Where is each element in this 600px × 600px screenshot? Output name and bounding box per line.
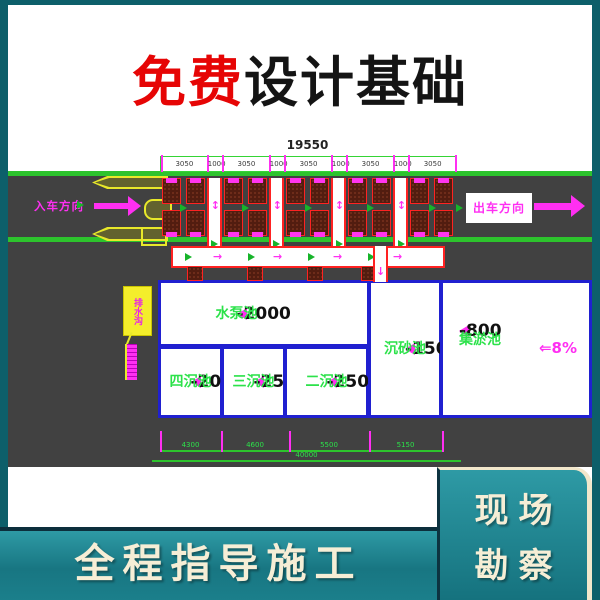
sand-pool-channel: ↓ [373,246,388,282]
channel-flow-arrow-icon: ↕ [273,200,282,211]
grate-cap [252,232,263,237]
flow-marker-icon [248,253,255,261]
promo-image: 免费设计基础 入车方向 出车方向 排水沟 19550 3050100030501… [0,0,600,600]
exit-direction-label: 出车方向 [466,193,532,223]
title-highlight: 免费 [132,51,244,114]
footer-corner-box: 现场 勘察 [437,467,592,600]
dim-segment-label: 1000 [208,158,223,170]
grate-cap [438,178,449,183]
collector-channel: →→→→ [171,246,445,268]
entry-arrow-head-icon [128,196,141,216]
traffic-island-top-fill [95,178,166,187]
entry-arrow-icon [94,203,128,209]
pool-inlet-stub [187,266,203,281]
flow-marker-icon [242,204,249,212]
traffic-island-top [92,176,168,189]
grate-cap [190,232,201,237]
collector-flow-arrow-icon: → [393,251,402,262]
flow-marker-icon [185,253,192,261]
collector-flow-arrow-icon: → [273,251,282,262]
grate-cap [352,178,363,183]
dim-total-top: 19550 [160,138,455,152]
dim-segment-label: 1000 [394,158,409,170]
channel-flow-arrow-icon: ↓ [376,266,385,277]
dim-segment-label: 3050 [285,158,332,170]
grate-cap [228,178,239,183]
exit-arrow-icon [534,203,572,210]
footer-box-line2: 勘察 [465,538,563,587]
grate-cap [438,232,449,237]
pool-inlet-stub [247,266,263,281]
dim-segment-label: 1000 [270,158,285,170]
dim-segment-label: 3050 [409,158,456,170]
dim-segment-label: 3050 [161,158,208,170]
flow-marker-icon [456,204,463,212]
collector-flow-arrow-icon: → [213,251,222,262]
flow-marker-icon [308,253,315,261]
grate-cap [314,232,325,237]
grate-cap [314,178,325,183]
dim-segment-label: 3050 [223,158,270,170]
dim-tick [455,155,457,172]
grate-cap [414,178,425,183]
grate-cap [352,232,363,237]
grate-cap [414,232,425,237]
channel-flow-arrow-icon: ↕ [397,200,406,211]
flow-marker-icon [77,201,84,209]
title-rest: 设计基础 [244,51,468,114]
collector-flow-arrow-icon: → [333,251,342,262]
callout-target-mark [125,344,137,380]
grate-cap [228,232,239,237]
grate-cap [166,178,177,183]
footer-banner: 全程指导施工 [0,527,437,600]
grate-cap [166,232,177,237]
grate-cap [252,178,263,183]
flow-marker-icon [429,204,436,212]
grate-cap [376,178,387,183]
flow-marker-icon [367,204,374,212]
channel-flow-arrow-icon: ↕ [335,200,344,211]
grate-cap [190,178,201,183]
grate-cap [290,232,301,237]
pool-inlet-stub [307,266,323,281]
exit-arrow-head-icon [571,195,585,217]
grate-cap [290,178,301,183]
flow-marker-icon [180,204,187,212]
dim-row-top: 305010003050100030501000305010003050 [160,156,457,172]
flow-marker-icon [305,204,312,212]
callout-label: 排水沟 [123,286,152,336]
channel-flow-arrow-icon: ↕ [211,200,220,211]
footer-box-line1: 现场 [465,483,563,532]
dim-segment-label: 1000 [332,158,347,170]
grate-cap [376,232,387,237]
page-title: 免费设计基础 [0,38,600,117]
dim-segment-label: 3050 [347,158,394,170]
